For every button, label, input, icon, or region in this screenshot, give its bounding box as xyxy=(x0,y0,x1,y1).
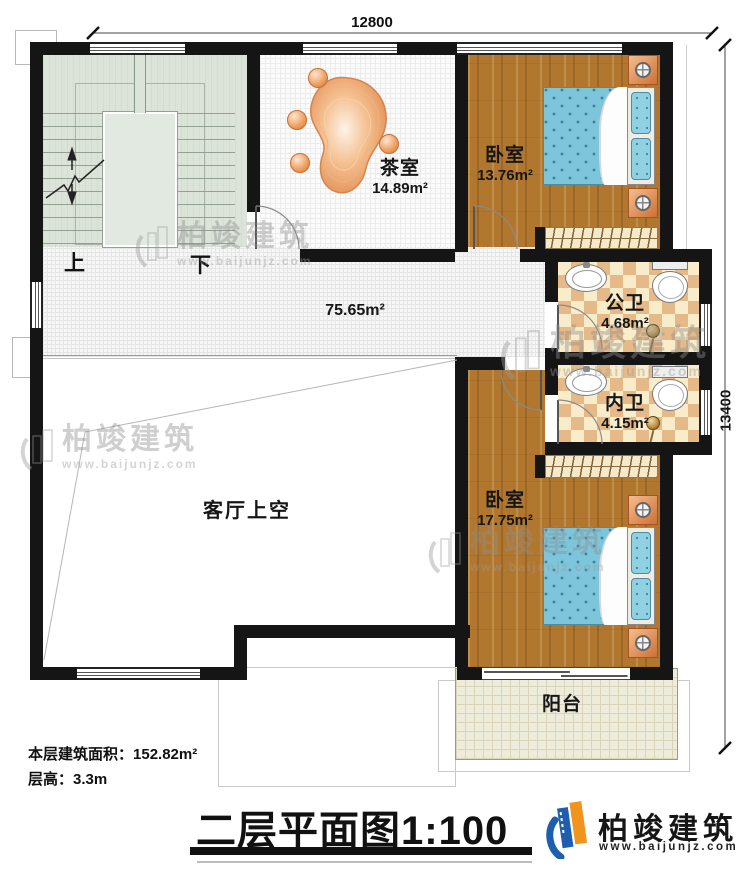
tea-stool xyxy=(290,153,310,173)
window xyxy=(303,42,397,55)
hall-floor xyxy=(43,247,545,357)
pillow xyxy=(631,138,651,180)
wall-segment xyxy=(455,357,505,370)
wall-segment xyxy=(545,249,712,262)
room-label-balcony: 阳台 xyxy=(510,694,614,716)
hall-area-label: 75.65m² xyxy=(300,302,410,320)
stair-up-label: 上 xyxy=(64,247,85,277)
wall-segment xyxy=(520,249,558,262)
room-label-bedroom2: 卧室17.75m² xyxy=(445,490,565,529)
dimension-height: 13400 xyxy=(718,373,735,449)
window xyxy=(699,390,712,435)
wall-segment xyxy=(30,667,77,680)
wall-segment xyxy=(545,443,558,455)
wall-segment xyxy=(545,348,558,395)
closet-bedroom1 xyxy=(545,227,658,249)
wall-segment xyxy=(30,328,43,680)
balcony-sliding-door xyxy=(482,667,630,680)
terrace-outline xyxy=(218,667,456,787)
brand-logo-icon xyxy=(545,799,595,859)
floor-height-note: 层高：3.3m xyxy=(28,768,107,789)
lamp-icon xyxy=(635,635,651,651)
wall-segment xyxy=(535,227,545,250)
watermark: 柏竣建筑www.baijunjz.com xyxy=(20,425,198,473)
pillow xyxy=(631,578,651,620)
stair-landing xyxy=(103,112,177,247)
window xyxy=(457,42,622,55)
lamp-icon xyxy=(635,502,651,518)
blanket xyxy=(599,87,629,185)
pillow xyxy=(631,532,651,574)
wall-segment xyxy=(545,262,558,302)
headboard xyxy=(627,87,655,185)
window xyxy=(77,667,200,680)
bedroom2-upper-floor xyxy=(468,370,545,455)
floor-plan: 12800 13400 上 下 茶室14.89m² 卧室13.76m² 公卫4.… xyxy=(0,0,750,872)
floor-area-note: 本层建筑面积：152.82m² xyxy=(28,743,197,764)
wall-segment xyxy=(699,262,712,304)
hall-edge-line xyxy=(43,358,457,359)
sink-public-bath xyxy=(565,264,607,292)
wall-segment xyxy=(247,625,470,638)
window xyxy=(699,304,712,346)
eave-line-right xyxy=(686,45,687,250)
stair-divider xyxy=(134,55,146,113)
pillow xyxy=(631,92,651,134)
tea-stool xyxy=(308,68,328,88)
wall-segment xyxy=(457,667,482,680)
tea-stool xyxy=(287,110,307,130)
wall-segment xyxy=(300,249,455,262)
stair-treads-right xyxy=(177,113,235,247)
nightstand xyxy=(628,628,658,658)
headboard xyxy=(627,527,655,625)
dimension-width: 12800 xyxy=(322,14,422,31)
wall-segment xyxy=(660,42,673,250)
wall-segment xyxy=(545,352,712,365)
brand-url: www.baijunjz.com xyxy=(599,841,738,853)
room-label-ensuite-bath: 内卫4.15m² xyxy=(575,393,675,432)
sink-ensuite-bath xyxy=(565,368,607,396)
closet-bedroom2 xyxy=(545,455,658,478)
room-label-tea: 茶室14.89m² xyxy=(340,158,460,197)
wall-segment xyxy=(30,42,43,282)
wall-segment xyxy=(660,455,673,680)
title-underline xyxy=(190,847,532,855)
lamp-icon xyxy=(635,62,651,78)
room-label-bedroom1: 卧室13.76m² xyxy=(445,145,565,184)
wall-segment xyxy=(247,42,260,212)
wall-segment xyxy=(397,42,457,55)
stair-treads-left xyxy=(43,113,103,247)
nightstand xyxy=(628,188,658,218)
wall-segment xyxy=(185,42,303,55)
flue-outline-left xyxy=(12,337,31,378)
wall-segment xyxy=(535,455,545,478)
lamp-icon xyxy=(635,195,651,211)
toilet-tank xyxy=(652,366,688,378)
wall-segment xyxy=(234,625,247,680)
room-label-public-bath: 公卫4.68m² xyxy=(575,293,675,332)
blanket xyxy=(599,527,629,625)
window xyxy=(90,42,185,55)
bed-bedroom2 xyxy=(543,527,655,625)
wall-segment xyxy=(545,442,712,455)
stair-down-label: 下 xyxy=(190,249,211,279)
void-label: 客厅上空 xyxy=(162,494,332,523)
window xyxy=(30,282,43,328)
nightstand xyxy=(628,495,658,525)
tea-stool xyxy=(379,134,399,154)
title-underline-thin xyxy=(197,861,532,863)
nightstand xyxy=(628,55,658,85)
hall-edge-line xyxy=(43,355,457,356)
